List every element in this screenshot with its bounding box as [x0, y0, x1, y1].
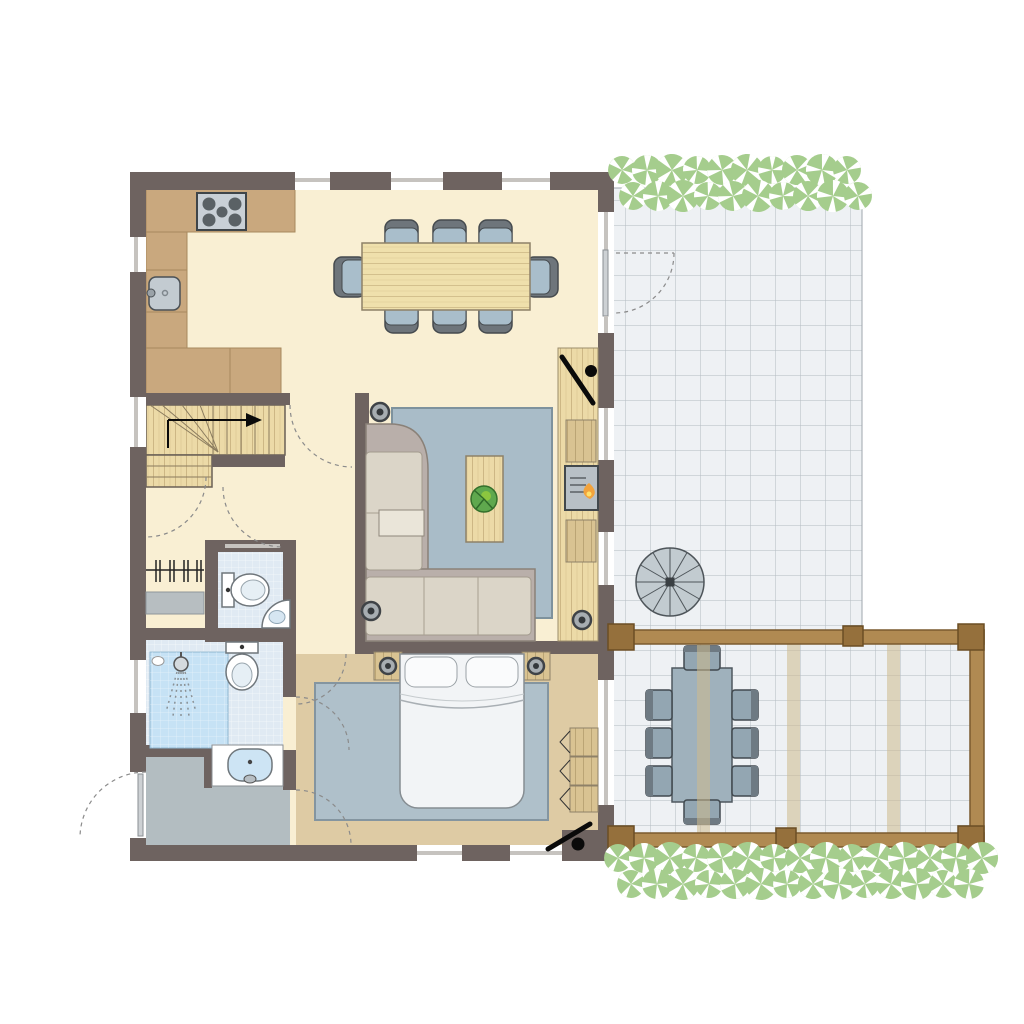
- window-glass: [502, 178, 550, 182]
- floorplan-shapes: [0, 0, 1024, 1024]
- kitchen-sink-faucet: [147, 289, 155, 297]
- wall-under-stairs: [212, 455, 285, 467]
- corner-sink-basin: [269, 611, 285, 624]
- wall-vanity-left: [204, 745, 212, 788]
- bush-icon: [608, 156, 636, 184]
- patio-chair-back: [751, 728, 758, 758]
- plant-inner: [481, 491, 491, 501]
- pergola-rafter: [697, 630, 710, 847]
- patio-chair-back: [646, 728, 653, 758]
- wardrobe: [570, 728, 598, 756]
- stairs-lower: [146, 455, 212, 487]
- tv-bedroom-mount: [572, 838, 585, 851]
- shower-tile-grid: [150, 652, 228, 748]
- vanity-faucet: [244, 775, 256, 783]
- pillow: [466, 657, 518, 687]
- spiral-staircase-center: [666, 578, 675, 587]
- bush-icon: [619, 182, 647, 210]
- bush-icon: [617, 870, 645, 898]
- bath-toilet-inner: [232, 663, 252, 687]
- patio-chair-back: [646, 766, 653, 796]
- cabinet: [566, 520, 596, 562]
- flame-icon-inner: [587, 492, 592, 497]
- window-glass: [604, 532, 608, 585]
- pergola-beam-top: [614, 630, 984, 644]
- wardrobe: [570, 757, 598, 785]
- pergola-rafter: [887, 630, 900, 847]
- dining-table: [362, 243, 530, 310]
- floorplan-page: [0, 0, 1024, 1024]
- stove-burner: [229, 214, 242, 227]
- wall-east: [598, 460, 614, 532]
- patio-chair-back: [751, 690, 758, 720]
- shower-head: [174, 657, 188, 671]
- bath-toilet-button: [240, 645, 244, 649]
- pergola-post: [958, 624, 984, 650]
- wc-toilet-inner: [241, 580, 265, 600]
- radiator: [146, 592, 204, 614]
- window-glass: [295, 178, 330, 182]
- tv-living-mount: [585, 365, 597, 377]
- window-glass: [510, 851, 562, 855]
- speaker-center: [377, 409, 384, 416]
- speaker-center: [533, 663, 539, 669]
- wall-bedroom-west: [283, 750, 296, 790]
- sofa-armrest-table: [379, 510, 424, 536]
- wardrobe: [570, 786, 598, 812]
- wall-wc-bath: [205, 628, 296, 642]
- bush-icon: [604, 844, 632, 872]
- window-glass: [604, 680, 608, 805]
- kitchen-counter-bottom: [146, 348, 281, 394]
- pillow: [405, 657, 457, 687]
- stove-burner: [203, 214, 216, 227]
- window-glass: [391, 178, 443, 182]
- window-glass: [604, 408, 608, 460]
- window-glass: [604, 316, 608, 333]
- speaker-center: [579, 617, 586, 624]
- stove-burner: [203, 198, 216, 211]
- soap-dish: [152, 657, 164, 666]
- patio-door-leaf: [603, 250, 608, 316]
- window-glass: [134, 660, 138, 713]
- wall-hall-top: [130, 393, 290, 405]
- window-glass: [417, 851, 462, 855]
- wall-wc-left: [205, 540, 218, 628]
- patio-chair-back: [646, 690, 653, 720]
- stove-burner: [229, 198, 242, 211]
- pergola-beam-right: [970, 630, 984, 847]
- wall-hall-nook: [146, 628, 205, 640]
- cabinet: [566, 420, 596, 462]
- stairs-upper: [146, 405, 285, 455]
- window-glass: [604, 212, 608, 253]
- window-glass: [134, 237, 138, 272]
- pergola-rafter: [787, 630, 800, 847]
- window-glass: [134, 397, 138, 447]
- floorplan-svg: [0, 0, 1024, 1024]
- wc-cistern-button: [226, 588, 230, 592]
- stove-burner: [217, 207, 228, 218]
- wall-east: [598, 333, 614, 408]
- sofa-cushion: [366, 577, 531, 635]
- vanity-sink-drain: [248, 760, 252, 764]
- wall-left: [130, 172, 146, 861]
- speaker-center: [385, 663, 391, 669]
- pergola-post: [608, 624, 634, 650]
- entry-floor-left: [146, 757, 205, 845]
- patio-chair-back: [751, 766, 758, 796]
- speaker-center: [368, 608, 375, 615]
- entry-door-leaf: [138, 774, 143, 836]
- pergola-post: [843, 626, 863, 646]
- entry-floor-right: [205, 786, 290, 845]
